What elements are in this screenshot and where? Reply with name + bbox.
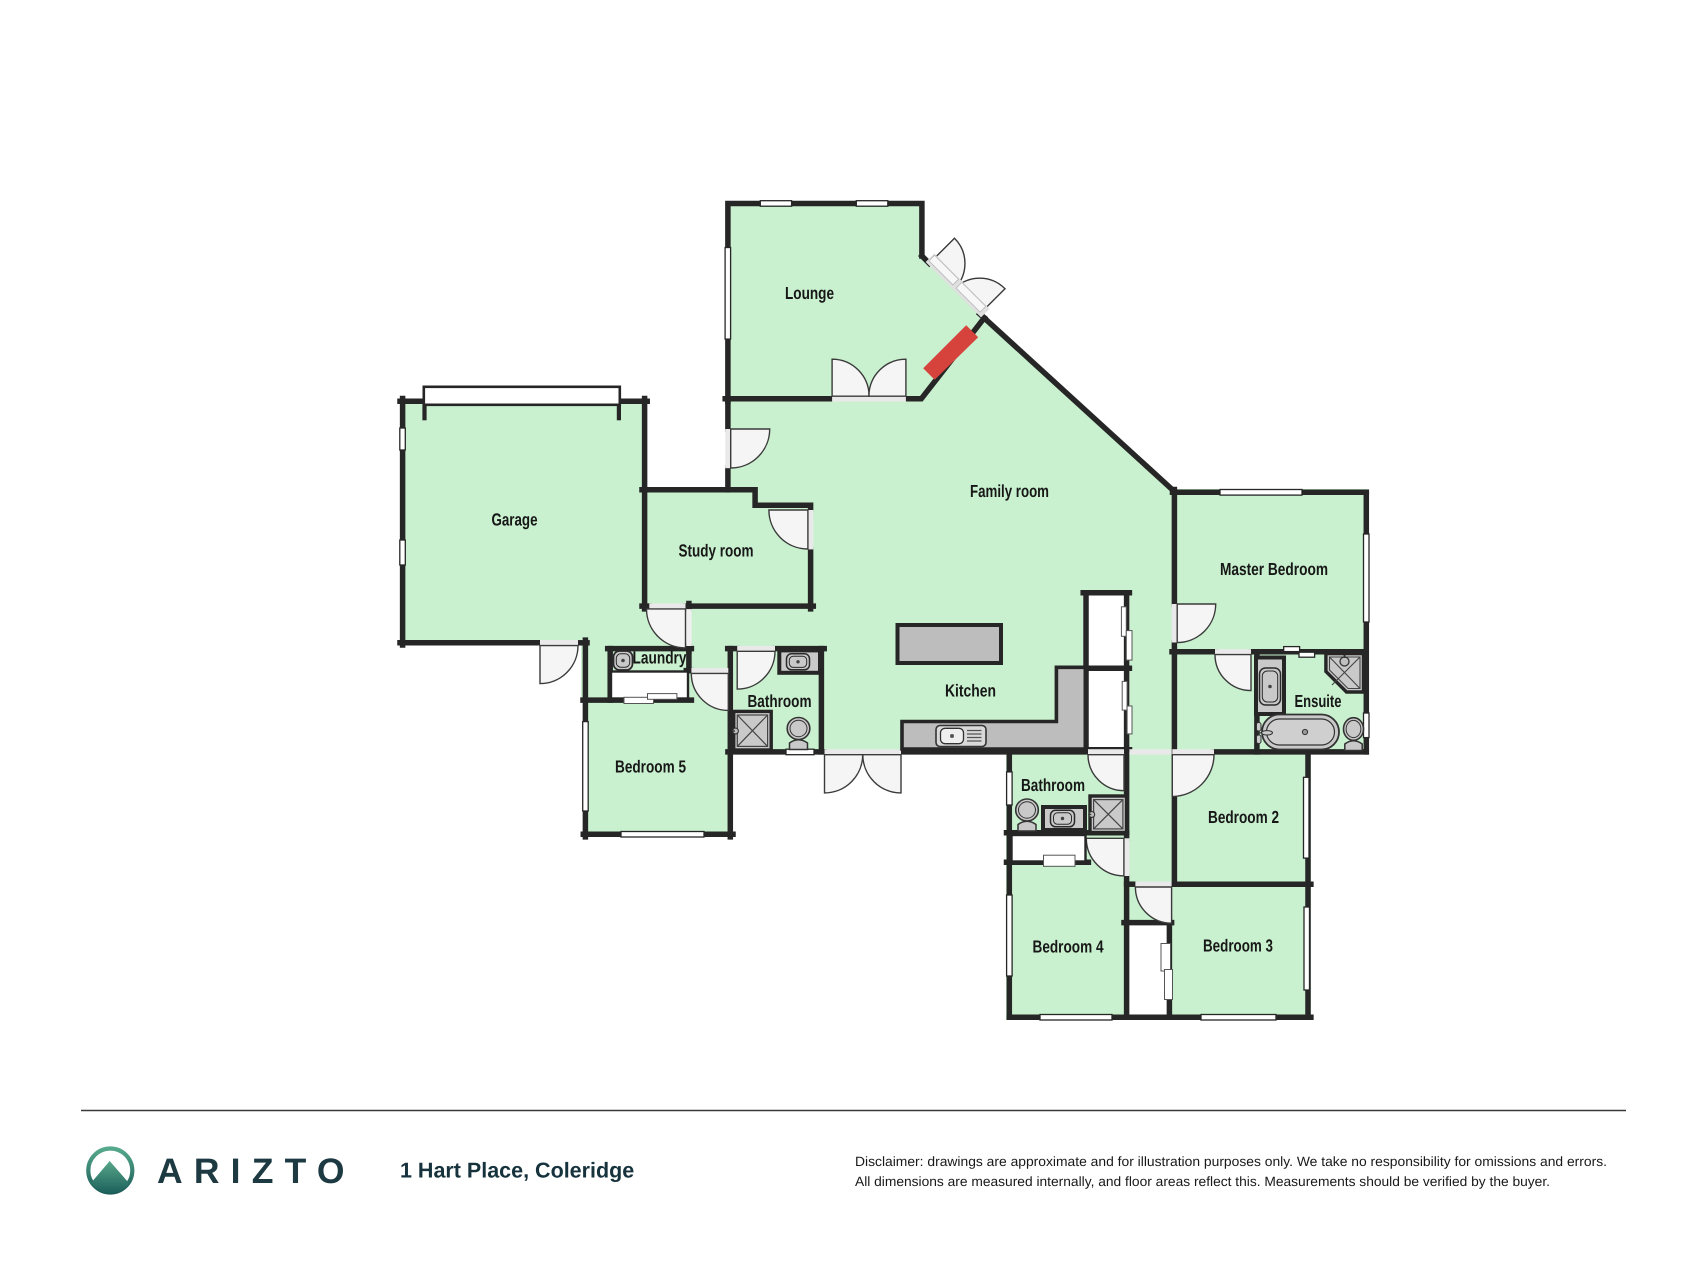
svg-text:All dimensions are measured in: All dimensions are measured internally, … [855,1174,1550,1189]
svg-text:ARIZTO: ARIZTO [157,1151,356,1191]
svg-text:Disclaimer: drawings are appro: Disclaimer: drawings are approximate and… [855,1154,1607,1169]
svg-text:Garage: Garage [492,510,538,530]
svg-text:Laundry: Laundry [633,648,687,668]
svg-text:Lounge: Lounge [785,283,834,303]
svg-text:Bathroom: Bathroom [1021,775,1085,795]
svg-text:Bedroom 4: Bedroom 4 [1033,937,1104,957]
svg-text:Family room: Family room [970,481,1049,501]
svg-text:Ensuite: Ensuite [1295,691,1342,711]
svg-text:Bathroom: Bathroom [748,691,812,711]
svg-text:Bedroom 5: Bedroom 5 [615,757,686,777]
svg-text:Bedroom 3: Bedroom 3 [1203,936,1273,956]
svg-text:1 Hart Place, Coleridge: 1 Hart Place, Coleridge [400,1159,634,1183]
svg-text:Bedroom 2: Bedroom 2 [1208,807,1279,827]
svg-text:Master Bedroom: Master Bedroom [1220,559,1328,579]
svg-text:Study room: Study room [679,541,754,561]
svg-text:Kitchen: Kitchen [945,681,996,701]
